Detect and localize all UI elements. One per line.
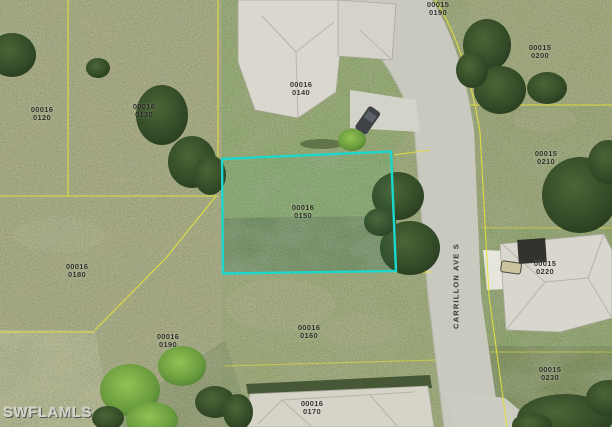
street-name-label: CARRILLON AVE S (452, 243, 461, 329)
aerial-parcel-map: 0001601200001601300001601400001601500001… (0, 0, 612, 427)
mls-watermark: SWFLAMLS (3, 404, 92, 421)
garage-shadow (517, 238, 547, 264)
car-light (500, 261, 521, 275)
house-east (500, 234, 612, 332)
palm-tree (338, 129, 366, 151)
aerial-photo (0, 0, 612, 427)
house-south (244, 375, 434, 427)
highlighted-parcel-boundary (222, 152, 396, 274)
